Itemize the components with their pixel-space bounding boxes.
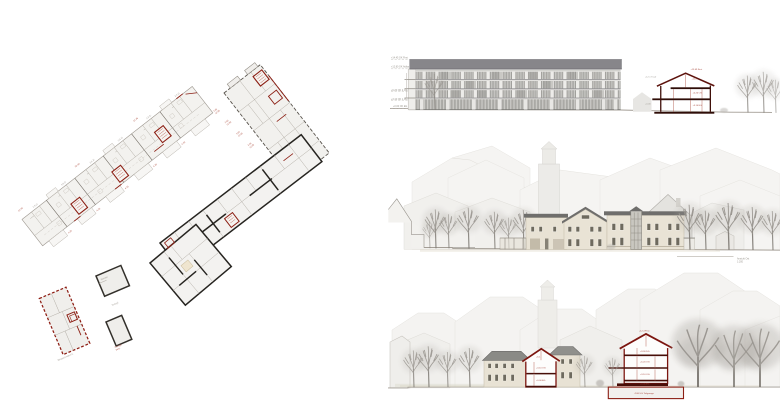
svg-text:+6.20 OK 2.OG: +6.20 OK 2.OG [391, 89, 408, 92]
svg-text:+13.09 First: +13.09 First [691, 68, 703, 71]
svg-text:+3.10 EG: +3.10 EG [693, 105, 703, 107]
svg-text:-2.80 UG Tiefgarage: -2.80 UG Tiefgarage [634, 392, 655, 395]
svg-text:+12.4 First: +12.4 First [639, 330, 650, 333]
svg-text:+0.00: +0.00 [645, 104, 651, 106]
svg-text:+12.80 OK Attika: +12.80 OK Attika [391, 66, 410, 69]
svg-text:+12.1 Trauf: +12.1 Trauf [645, 76, 657, 79]
svg-text:+6.20 OG: +6.20 OG [693, 93, 703, 95]
svg-text:+11.2: +11.2 [692, 79, 698, 81]
svg-text:+6.20 OG: +6.20 OG [640, 362, 650, 364]
svg-text:+3.10 OG: +3.10 OG [536, 368, 546, 370]
svg-text:+3.10 OG: +3.10 OG [640, 374, 650, 376]
svg-text:+14.45 OK First: +14.45 OK First [391, 57, 408, 60]
svg-text:+0.00 EG: +0.00 EG [640, 383, 650, 385]
svg-text:+3.10 OK 1.OG: +3.10 OK 1.OG [391, 98, 408, 101]
svg-text:+0.00 EG: +0.00 EG [536, 380, 546, 382]
svg-text:+9.30 DG: +9.30 DG [640, 351, 650, 353]
svg-text:1:200: 1:200 [737, 261, 744, 264]
svg-text:+0.00 OK EG: +0.00 OK EG [393, 105, 407, 108]
